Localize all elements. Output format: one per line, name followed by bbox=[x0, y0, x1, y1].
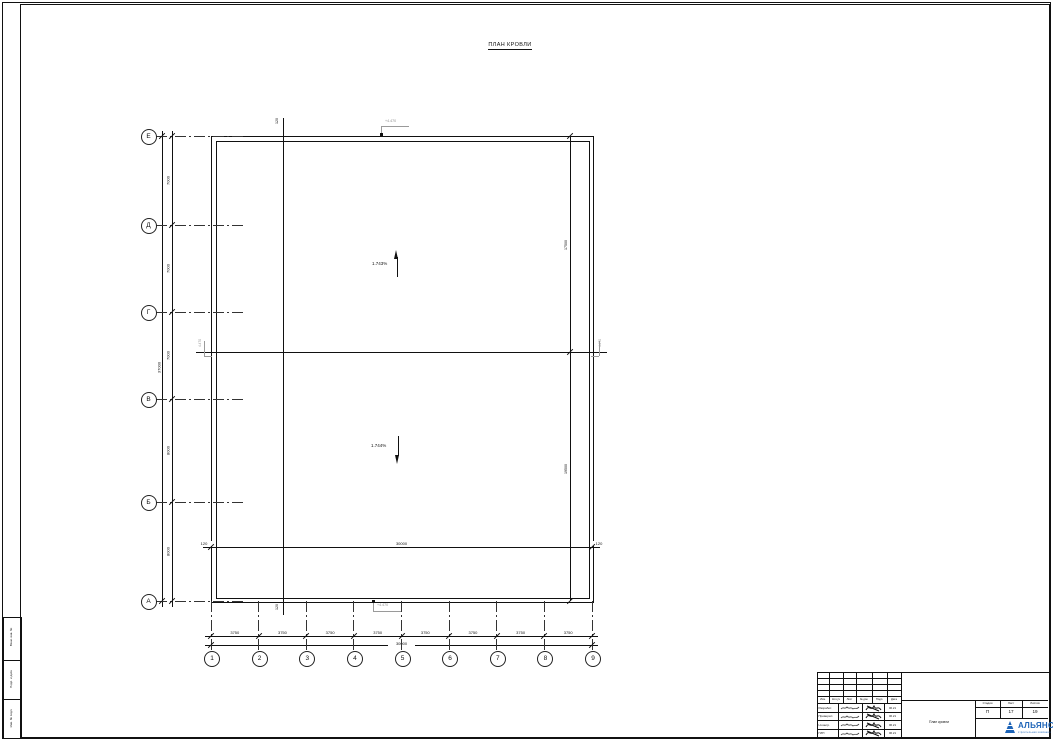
title-block-row-line bbox=[817, 690, 901, 691]
row-axis-bubble: Д bbox=[141, 218, 157, 234]
parapet-offset-bottom-label: 120 bbox=[275, 592, 279, 622]
roof-drain-line-right bbox=[570, 136, 571, 601]
signature-date: 06.21 bbox=[884, 723, 901, 727]
name-handwriting-icon bbox=[840, 721, 861, 729]
elevation-left-leader-h bbox=[204, 356, 212, 357]
elevation-left-leader-v bbox=[204, 341, 205, 356]
row-dim-label: 7000 bbox=[166, 340, 171, 370]
slope-arrow-down-icon bbox=[398, 436, 399, 456]
left-dim-total-label: 37000 bbox=[157, 352, 162, 384]
title-block-header-label: № док. bbox=[856, 698, 872, 701]
signature-icon bbox=[864, 704, 884, 712]
col-axis-line bbox=[306, 601, 307, 651]
col-axis-line bbox=[401, 601, 402, 651]
elevation-right-leader-v bbox=[599, 341, 600, 356]
title-block-col-line bbox=[862, 703, 863, 737]
stage-value: П bbox=[975, 709, 1000, 714]
title-block-col-line bbox=[838, 703, 839, 737]
right-dim-lower-label: 19500 bbox=[564, 454, 568, 484]
side-stamp-cell-label: Инв. № подл. bbox=[9, 700, 13, 736]
company-tagline: строительная компания bbox=[1018, 731, 1051, 734]
sheets-value: 19 bbox=[1022, 709, 1048, 714]
elevation-right-leader-h bbox=[591, 356, 599, 357]
inner-dim-left-label: 120 bbox=[196, 541, 212, 546]
company-logo-stripe bbox=[1004, 725, 1016, 726]
signature-role-label: Проверил bbox=[819, 714, 833, 718]
col-dim-label: 3750 bbox=[270, 630, 294, 635]
col-axis-bubble: 7 bbox=[490, 651, 506, 667]
col-axis-bubble: 4 bbox=[347, 651, 363, 667]
ridge-line bbox=[211, 352, 592, 353]
col-axis-line bbox=[544, 601, 545, 651]
sheet-outer-border-right bbox=[1050, 2, 1051, 739]
signature-date: 06.21 bbox=[884, 731, 901, 735]
drawing-title: ПЛАН КРОВЛИ bbox=[460, 42, 560, 48]
roof-joint-line-left-stub-top bbox=[283, 118, 284, 136]
name-handwriting-icon bbox=[840, 713, 861, 721]
row-axis-bubble: В bbox=[141, 392, 157, 408]
row-axis-bubble: Б bbox=[141, 495, 157, 511]
inner-dim-line bbox=[203, 547, 600, 548]
parapet-offset-top-label: 120 bbox=[275, 106, 279, 136]
col-dim-label: 3750 bbox=[223, 630, 247, 635]
slope-arrow-up-icon bbox=[397, 257, 398, 277]
stage-header: Стадия bbox=[975, 701, 1000, 705]
name-handwriting-icon bbox=[840, 704, 861, 712]
elevation-bottom-dot bbox=[372, 600, 375, 603]
sheet-header: Лист bbox=[1000, 701, 1022, 705]
doc-title: План кровли bbox=[903, 720, 975, 724]
row-axis-bubble: А bbox=[141, 594, 157, 610]
name-handwriting-icon bbox=[840, 730, 861, 738]
elevation-bottom-label: +4.470 bbox=[377, 603, 388, 607]
col-axis-line bbox=[258, 601, 259, 651]
roof-joint-line-left bbox=[283, 136, 284, 601]
signature-icon bbox=[864, 712, 884, 720]
drawing-title-text: ПЛАН КРОВЛИ bbox=[488, 42, 531, 50]
col-axis-line bbox=[449, 601, 450, 651]
slope-arrow-up-head-icon bbox=[394, 250, 398, 259]
col-dim-label: 3750 bbox=[366, 630, 390, 635]
row-axis-bubble: Е bbox=[141, 129, 157, 145]
right-dim-upper-label: 17500 bbox=[564, 230, 568, 260]
title-block-stage-header-underline bbox=[975, 707, 1048, 708]
col-dim-label: 3750 bbox=[413, 630, 437, 635]
drawing-sheet: Взам. инв. № Подп. и дата Инв. № подл. П… bbox=[0, 0, 1053, 740]
sheet-outer-border-bottom bbox=[2, 738, 1051, 739]
title-block-header-label: Изм. bbox=[817, 698, 829, 701]
sheet-outer-border-top bbox=[2, 2, 1051, 3]
left-dim-chain-total bbox=[162, 131, 163, 607]
left-dim-chain-segments bbox=[172, 131, 173, 607]
signature-icon bbox=[864, 729, 884, 737]
roof-joint-line-left-stub-bottom bbox=[283, 601, 284, 615]
slope-up-label: 1.743% bbox=[372, 261, 387, 266]
elevation-top-leader bbox=[381, 126, 409, 127]
slope-down-label: 1.744% bbox=[371, 443, 386, 448]
signature-role-label: Н.контр. bbox=[819, 723, 831, 727]
elevation-bottom-leader-drop bbox=[373, 603, 374, 611]
col-axis-line bbox=[353, 601, 354, 651]
company-logo-stripe bbox=[1004, 729, 1018, 730]
roof-outline-inner bbox=[216, 141, 590, 599]
elevation-bottom-leader bbox=[373, 611, 401, 612]
title-block-left-table-edge bbox=[901, 672, 902, 737]
title-block-row-line bbox=[817, 678, 901, 679]
title-block-header-label: Дата bbox=[887, 698, 901, 701]
elevation-left-label: 4.470 bbox=[198, 331, 202, 355]
col-axis-bubble: 2 bbox=[252, 651, 268, 667]
col-dim-label: 3750 bbox=[556, 630, 580, 635]
side-stamp-cell-label: Взам. инв. № bbox=[9, 619, 13, 655]
row-axis-bubble: Г bbox=[141, 305, 157, 321]
company-logo-icon bbox=[1005, 721, 1015, 733]
side-stamp-cell-label: Подп. и дата bbox=[9, 661, 13, 697]
col-axis-bubble: 5 bbox=[395, 651, 411, 667]
row-dim-label: 8000 bbox=[166, 536, 171, 566]
sheet-value: 17 bbox=[1000, 709, 1022, 714]
title-block-header-label: Подп. bbox=[872, 698, 887, 701]
col-dim-label: 3750 bbox=[509, 630, 533, 635]
col-axis-bubble: 6 bbox=[442, 651, 458, 667]
col-axis-bubble: 9 bbox=[585, 651, 601, 667]
signature-role-label: Разработ. bbox=[819, 706, 832, 710]
elevation-top-label: +4.470 bbox=[385, 119, 396, 123]
signature-date: 06.21 bbox=[884, 706, 901, 710]
col-dim-label: 3750 bbox=[318, 630, 342, 635]
row-dim-label: 8000 bbox=[166, 435, 171, 465]
col-dim-label: 3750 bbox=[461, 630, 485, 635]
signature-icon bbox=[864, 721, 884, 729]
signature-role-label: ГИП bbox=[819, 731, 825, 735]
title-block-row-line bbox=[817, 684, 901, 685]
col-axis-bubble: 1 bbox=[204, 651, 220, 667]
title-block-header-label: Лист bbox=[843, 698, 856, 701]
inner-dim-center-label: 30000 bbox=[388, 541, 415, 546]
col-axis-line bbox=[496, 601, 497, 651]
sheets-header: Листов bbox=[1022, 701, 1048, 705]
title-block-row-line bbox=[817, 696, 901, 697]
row-dim-label: 7000 bbox=[166, 165, 171, 195]
elevation-top-dot bbox=[380, 133, 383, 136]
signature-date: 06.21 bbox=[884, 714, 901, 718]
company-name: АЛЬЯНС bbox=[1018, 721, 1053, 730]
slope-arrow-down-head-icon bbox=[395, 455, 399, 464]
title-block-company-cell-top bbox=[975, 718, 1048, 719]
title-block-header-label: Кол.уч bbox=[829, 698, 843, 701]
row-dim-label: 7000 bbox=[166, 253, 171, 283]
